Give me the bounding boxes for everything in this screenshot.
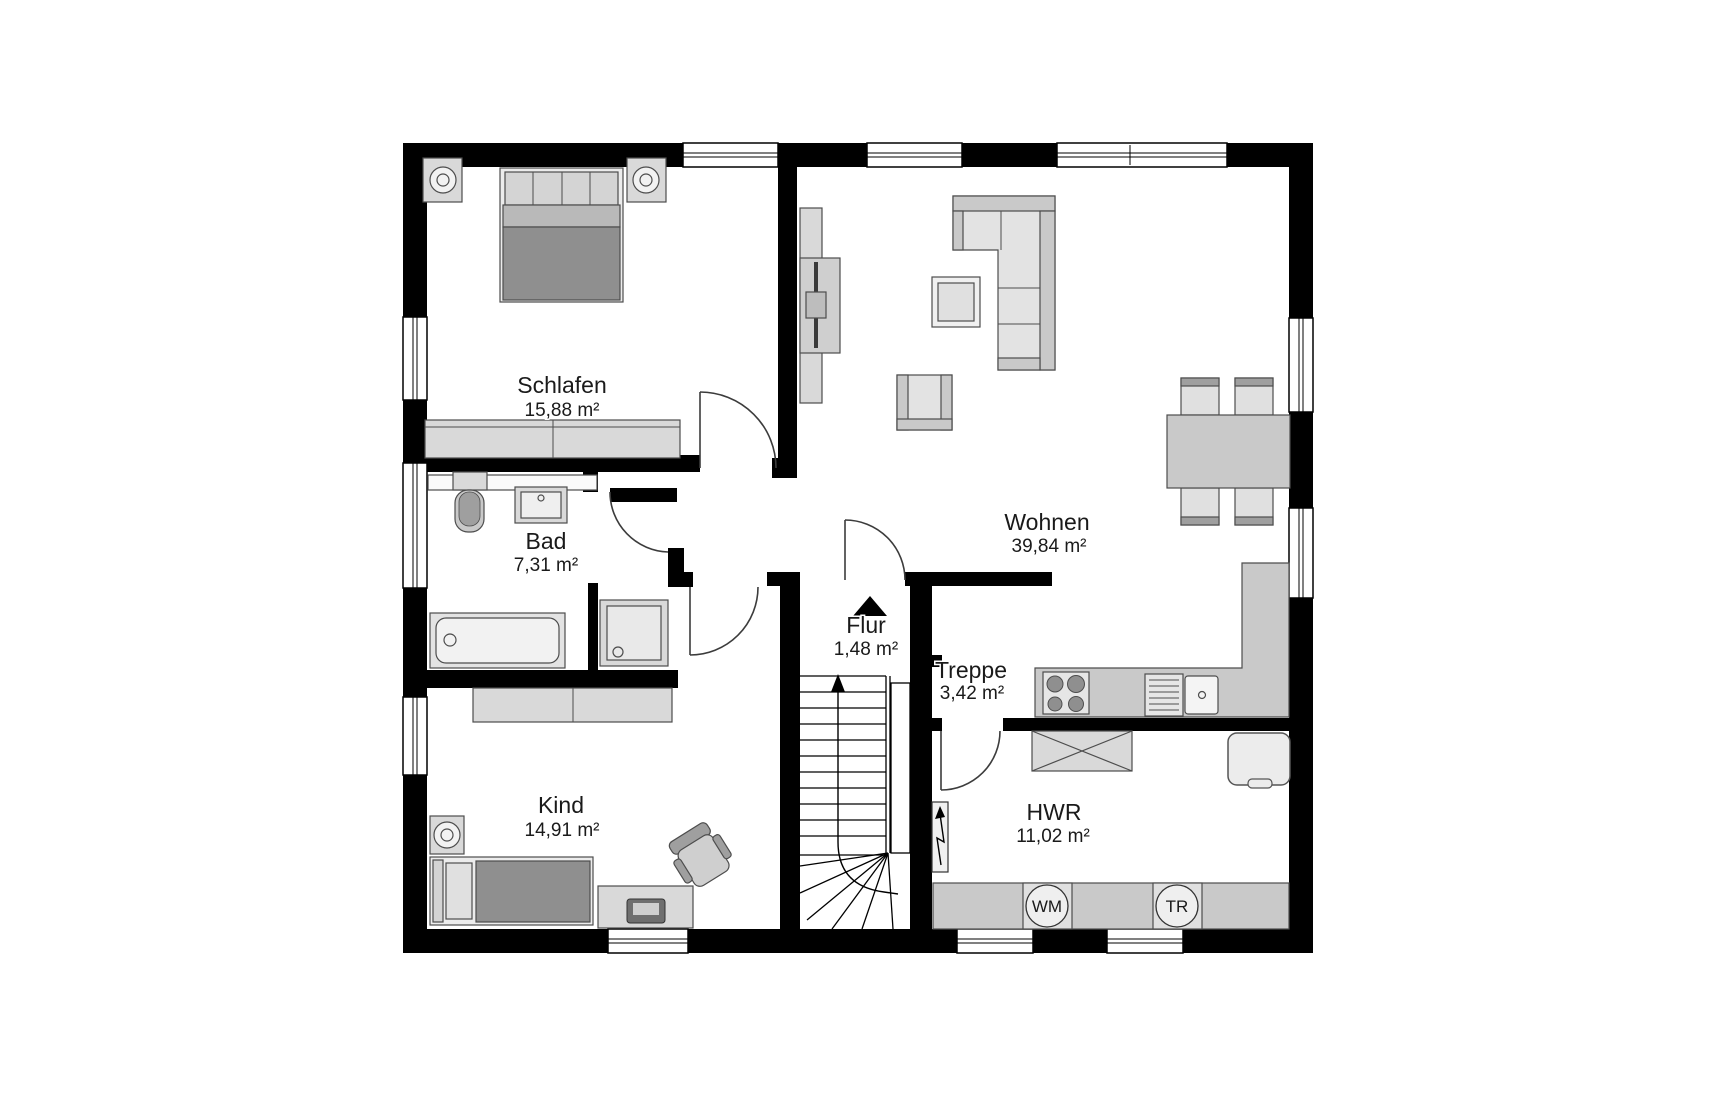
svg-text:15,88 m²: 15,88 m²	[525, 400, 600, 421]
desk	[598, 886, 693, 928]
wohnen-furniture	[800, 196, 1290, 525]
window-kueche-right	[1289, 508, 1313, 598]
nightstand-left	[423, 158, 462, 202]
svg-text:Flur: Flur	[846, 612, 886, 638]
window-schlafen-top	[683, 143, 778, 167]
room-label-kind: Kind 14,91 m²	[525, 792, 600, 841]
svg-text:7,31 m²: 7,31 m²	[514, 555, 578, 576]
door-schlafen	[700, 392, 776, 468]
dryer: TR	[1153, 883, 1202, 929]
window-kind-bottom	[608, 929, 688, 953]
upper-flight	[891, 683, 910, 853]
window-schlafen-left	[403, 317, 427, 400]
wardrobe-kind	[473, 688, 672, 722]
svg-text:Treppe: Treppe	[935, 657, 1007, 683]
tv-sideboard	[800, 208, 840, 403]
dining-chair	[1235, 378, 1273, 415]
lamp-icon	[633, 167, 659, 193]
crossed-cabinet	[1032, 731, 1132, 771]
utility-appliance	[1228, 733, 1290, 788]
wardrobe-schlafen	[425, 420, 680, 458]
svg-text:Wohnen: Wohnen	[1004, 509, 1089, 535]
stair-treads	[800, 676, 888, 855]
door-kind	[690, 587, 758, 655]
lamp-icon	[434, 822, 460, 848]
svg-text:Bad: Bad	[526, 528, 567, 554]
window-wohnen-top-1	[867, 143, 962, 167]
window-wohnen-top-2	[1057, 143, 1227, 167]
room-label-treppe: Treppe 3,42 m²	[935, 657, 1007, 704]
window-hwr-bottom-2	[1107, 929, 1183, 953]
washing-machine-label: WM	[1032, 897, 1062, 916]
armchair	[897, 375, 952, 430]
toilet	[453, 472, 487, 532]
dining-table-group	[1167, 378, 1290, 525]
room-label-hwr: HWR 11,02 m²	[1016, 799, 1090, 847]
laundry-counter: WM TR	[933, 883, 1289, 929]
laptop-icon	[627, 899, 665, 923]
bathtub	[430, 613, 565, 668]
hwr-fixtures: WM TR	[932, 731, 1290, 929]
svg-text:14,91 m²: 14,91 m²	[525, 820, 600, 841]
floor-plan-drawing: WM TR	[0, 0, 1720, 1098]
dining-table	[1167, 415, 1290, 488]
coffee-table	[932, 277, 980, 327]
washbasin	[515, 487, 567, 523]
svg-text:3,42 m²: 3,42 m²	[940, 683, 1004, 704]
cooktop	[1043, 672, 1089, 714]
window-kind-left	[403, 697, 427, 775]
door-hwr	[941, 731, 1000, 790]
window-wohnen-right	[1289, 318, 1313, 412]
room-label-schlafen: Schlafen 15,88 m²	[517, 372, 607, 421]
svg-text:Kind: Kind	[538, 792, 584, 818]
kitchen	[1035, 563, 1289, 717]
nightstand-right	[627, 158, 666, 202]
desk-chair	[663, 818, 737, 892]
svg-text:39,84 m²: 39,84 m²	[1012, 536, 1087, 557]
room-label-wohnen: Wohnen 39,84 m²	[1004, 509, 1089, 557]
stair-direction-arrow	[831, 674, 845, 692]
dining-chair	[1181, 488, 1219, 525]
svg-text:11,02 m²: 11,02 m²	[1016, 826, 1090, 847]
kitchen-sink	[1145, 674, 1218, 716]
nightstand-kind	[430, 816, 464, 854]
svg-text:Schlafen: Schlafen	[517, 372, 607, 398]
room-label-flur: Flur 1,48 m²	[834, 612, 898, 660]
room-label-bad: Bad 7,31 m²	[514, 528, 578, 576]
floor-plan-page: WM TR	[0, 0, 1720, 1098]
lamp-icon	[430, 167, 456, 193]
door-flur	[845, 520, 905, 580]
window-bad-left	[403, 463, 427, 588]
single-bed	[430, 857, 593, 925]
electrical-panel	[932, 802, 948, 872]
dryer-label: TR	[1166, 897, 1189, 916]
svg-text:HWR: HWR	[1027, 799, 1082, 825]
double-bed	[500, 168, 623, 302]
staircase	[800, 674, 910, 929]
svg-text:1,48 m²: 1,48 m²	[834, 639, 898, 660]
washing-machine: WM	[1023, 883, 1072, 929]
dining-chair	[1235, 488, 1273, 525]
dining-chair	[1181, 378, 1219, 415]
shower	[600, 600, 668, 666]
window-hwr-bottom-1	[957, 929, 1033, 953]
